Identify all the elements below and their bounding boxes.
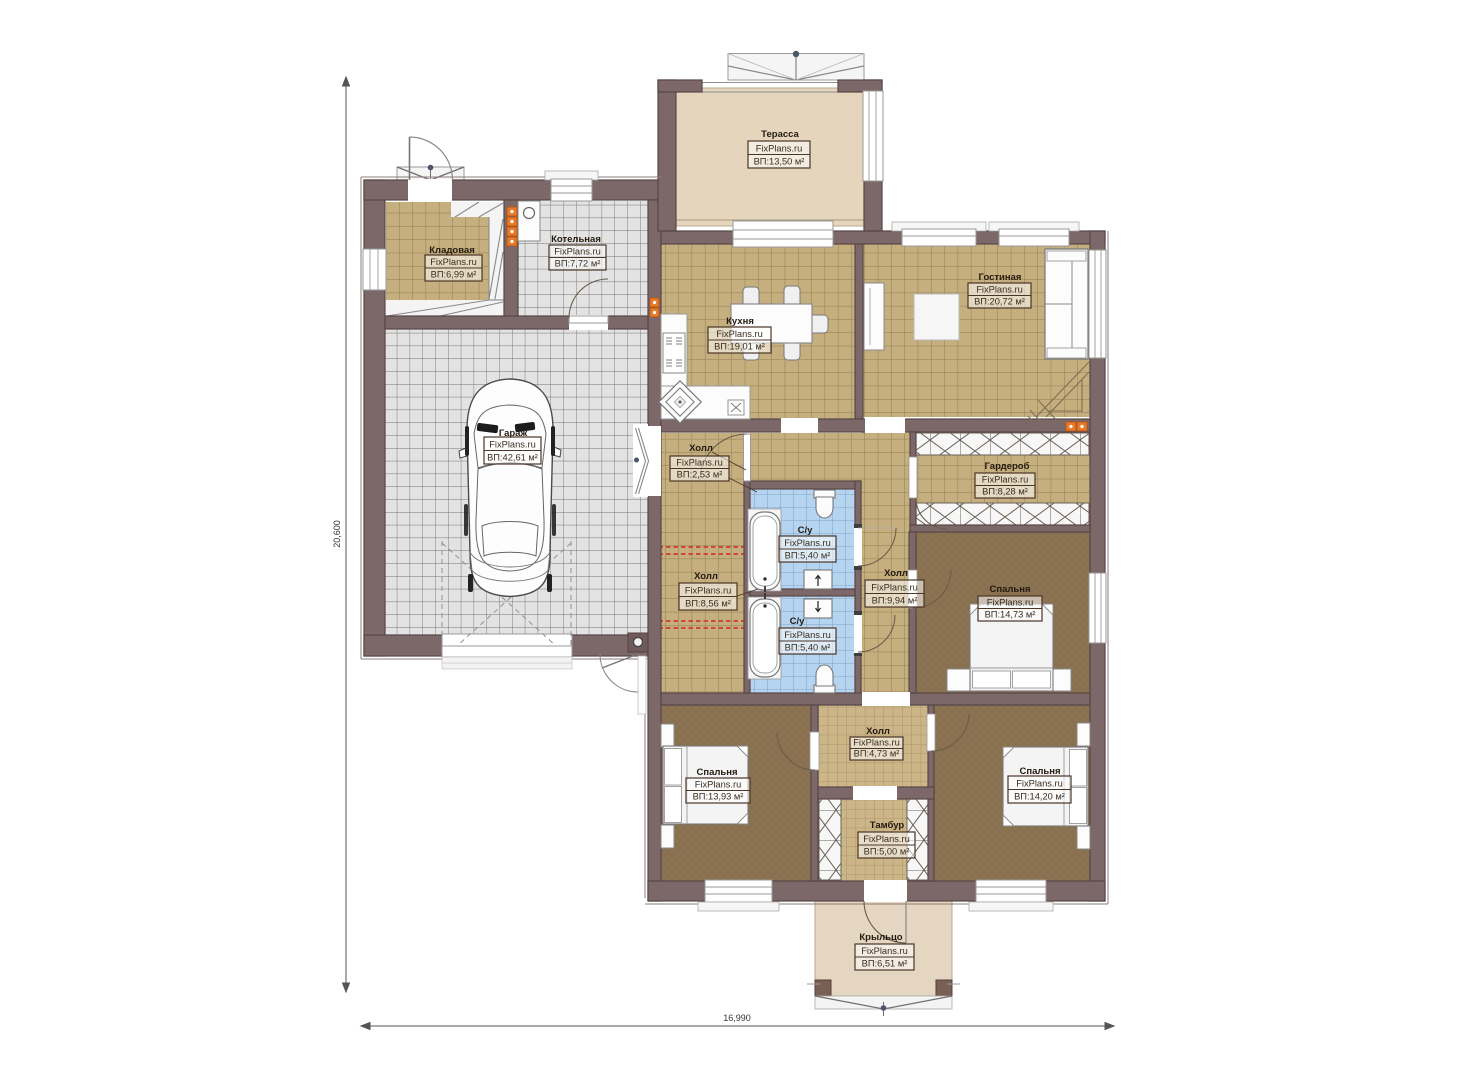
svg-text:ВП:13,50 м²: ВП:13,50 м² [754,157,805,167]
svg-text:ВП:19,01 м²: ВП:19,01 м² [714,342,765,352]
svg-text:ВП:6,99 м²: ВП:6,99 м² [431,270,477,280]
svg-text:ВП:5,00 м²: ВП:5,00 м² [864,847,910,857]
svg-text:FixPlans.ru: FixPlans.ru [987,598,1034,608]
svg-text:ВП:4,73 м²: ВП:4,73 м² [854,749,900,759]
svg-text:FixPlans.ru: FixPlans.ru [756,144,803,154]
svg-text:FixPlans.ru: FixPlans.ru [554,247,601,257]
svg-text:16,990: 16,990 [723,1013,751,1023]
svg-text:ВП:14,20 м²: ВП:14,20 м² [1014,792,1065,802]
svg-text:Спальня: Спальня [1019,766,1060,777]
svg-text:ВП:9,94 м²: ВП:9,94 м² [872,596,918,606]
svg-text:FixPlans.ru: FixPlans.ru [716,329,763,339]
svg-text:Холл: Холл [866,726,890,737]
svg-text:ВП:20,72 м²: ВП:20,72 м² [974,297,1025,307]
svg-text:ВП:14,73 м²: ВП:14,73 м² [985,610,1036,620]
svg-text:FixPlans.ru: FixPlans.ru [861,946,908,956]
svg-text:FixPlans.ru: FixPlans.ru [784,630,831,640]
svg-text:FixPlans.ru: FixPlans.ru [853,738,900,748]
svg-text:Холл: Холл [884,568,908,579]
svg-text:FixPlans.ru: FixPlans.ru [863,834,910,844]
svg-text:С/у: С/у [798,525,814,536]
svg-text:ВП:7,72 м²: ВП:7,72 м² [555,259,601,269]
svg-text:FixPlans.ru: FixPlans.ru [676,458,723,468]
svg-text:FixPlans.ru: FixPlans.ru [1016,779,1063,789]
svg-text:ВП:42,61 м²: ВП:42,61 м² [487,453,538,463]
svg-text:С/у: С/у [790,616,806,627]
svg-text:Холл: Холл [694,571,718,582]
svg-text:ВП:5,40 м²: ВП:5,40 м² [785,643,831,653]
svg-text:FixPlans.ru: FixPlans.ru [976,285,1023,295]
svg-text:FixPlans.ru: FixPlans.ru [695,780,742,790]
svg-text:ВП:13,93 м²: ВП:13,93 м² [693,792,744,802]
svg-text:Крыльцо: Крыльцо [859,932,902,943]
svg-text:Спальня: Спальня [696,767,737,778]
svg-text:ВП:2,53 м²: ВП:2,53 м² [677,470,723,480]
svg-text:Гардероб: Гардероб [985,461,1030,472]
svg-text:FixPlans.ru: FixPlans.ru [784,538,831,548]
svg-text:Котельная: Котельная [551,234,601,245]
svg-text:ВП:6,51 м²: ВП:6,51 м² [862,959,908,969]
svg-text:FixPlans.ru: FixPlans.ru [982,475,1029,485]
svg-text:FixPlans.ru: FixPlans.ru [489,440,536,450]
svg-text:ВП:8,28 м²: ВП:8,28 м² [982,487,1028,497]
svg-text:Кладовая: Кладовая [429,245,475,256]
svg-text:FixPlans.ru: FixPlans.ru [871,583,918,593]
svg-text:Терасса: Терасса [761,129,799,140]
svg-text:Спальня: Спальня [989,584,1030,595]
svg-text:FixPlans.ru: FixPlans.ru [430,257,477,267]
svg-text:Тамбур: Тамбур [870,820,905,831]
svg-text:20,600: 20,600 [332,520,342,548]
svg-text:FixPlans.ru: FixPlans.ru [685,586,732,596]
svg-text:ВП:8,56 м²: ВП:8,56 м² [685,599,731,609]
svg-text:Гостиная: Гостиная [979,272,1022,283]
svg-text:Кухня: Кухня [726,316,754,327]
svg-text:Холл: Холл [689,443,713,454]
svg-text:ВП:5,40 м²: ВП:5,40 м² [785,551,831,561]
